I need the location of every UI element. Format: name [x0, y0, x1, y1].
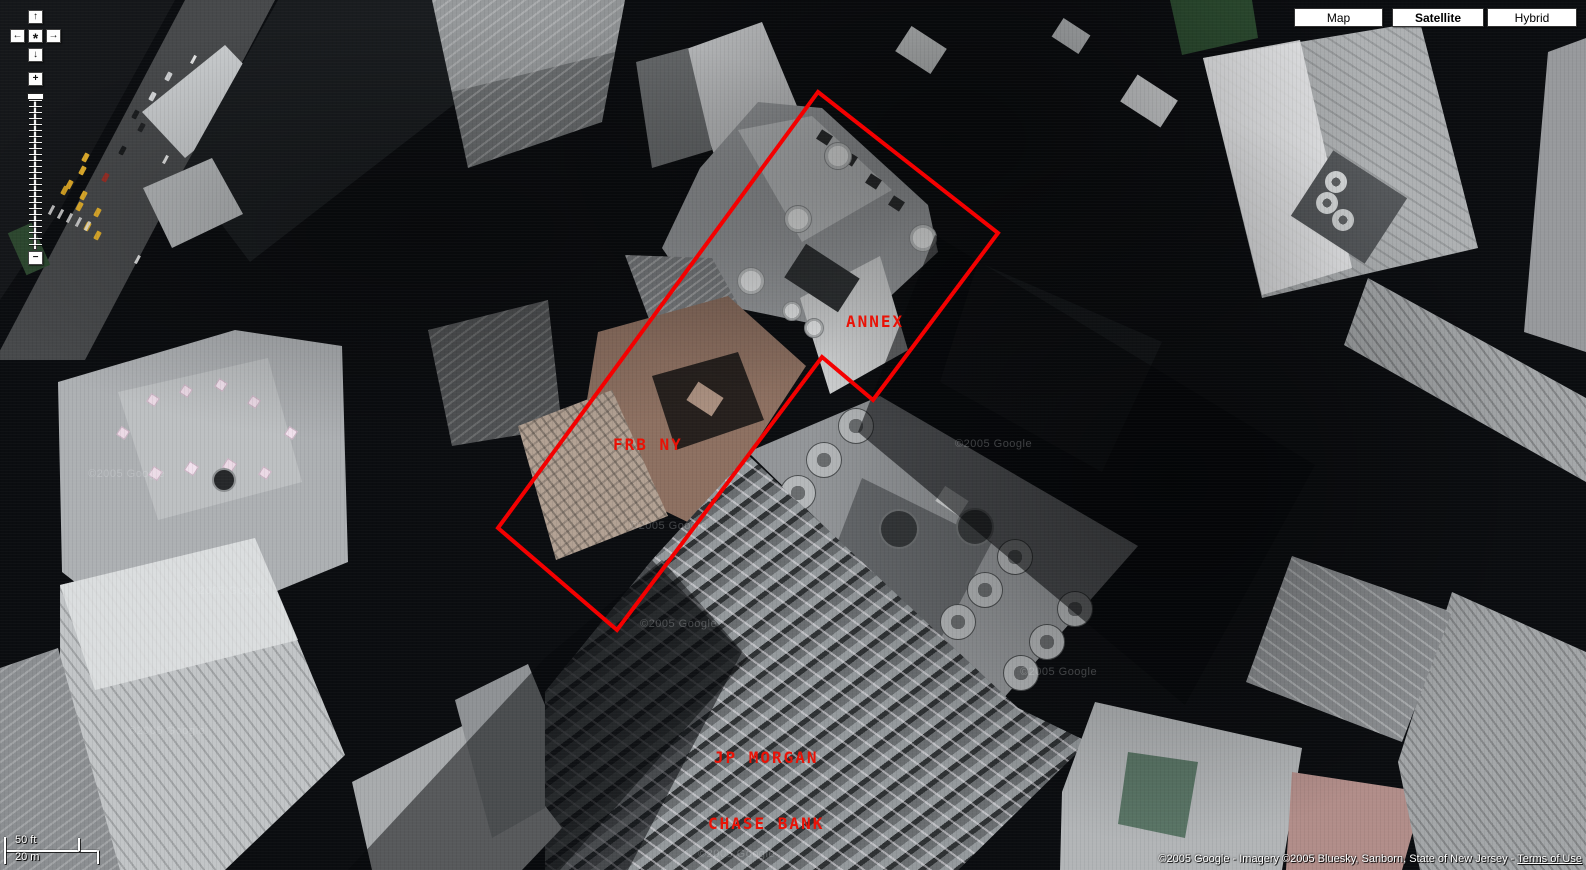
arrow-up-icon: ↑ [33, 11, 38, 22]
map-view-button[interactable]: Map [1294, 8, 1383, 27]
pan-left-button[interactable]: ← [10, 29, 25, 43]
center-reset-icon: * [33, 30, 38, 46]
pan-right-button[interactable]: → [46, 29, 61, 43]
copyright-text: ©2005 Google - Imagery ©2005 Bluesky, Sa… [1158, 853, 1517, 865]
arrow-left-icon: ← [13, 30, 23, 41]
satellite-view-button[interactable]: Satellite [1392, 8, 1484, 27]
minus-icon: − [33, 252, 39, 263]
photo-grain [0, 0, 1586, 870]
pan-down-button[interactable]: ↓ [28, 48, 43, 62]
hybrid-view-button[interactable]: Hybrid [1487, 8, 1577, 27]
arrow-down-icon: ↓ [33, 49, 38, 60]
arrow-right-icon: → [49, 30, 59, 41]
scale-bar-end-tick [4, 837, 6, 864]
satellite-map-canvas[interactable]: ©2005 Google ©2005 Google ©2005 Google ©… [0, 0, 1586, 870]
zoom-out-button[interactable]: − [28, 251, 43, 265]
scale-imperial-label: 50 ft [15, 834, 36, 846]
google-maps-satellite-view: ©2005 Google ©2005 Google ©2005 Google ©… [0, 0, 1586, 870]
scale-bar-m-tick [97, 851, 99, 864]
terms-of-use-link[interactable]: Terms of Use [1517, 853, 1582, 865]
zoom-slider-track[interactable] [33, 95, 37, 250]
scale-bar-ft-tick [78, 838, 80, 851]
scale-metric-label: 20 m [15, 851, 39, 863]
attribution: ©2005 Google - Imagery ©2005 Bluesky, Sa… [1158, 853, 1582, 865]
zoom-in-button[interactable]: + [28, 72, 43, 86]
pan-up-button[interactable]: ↑ [28, 10, 43, 24]
zoom-slider-handle[interactable] [27, 93, 44, 100]
pan-center-button[interactable]: * [28, 29, 43, 43]
plus-icon: + [33, 73, 39, 84]
